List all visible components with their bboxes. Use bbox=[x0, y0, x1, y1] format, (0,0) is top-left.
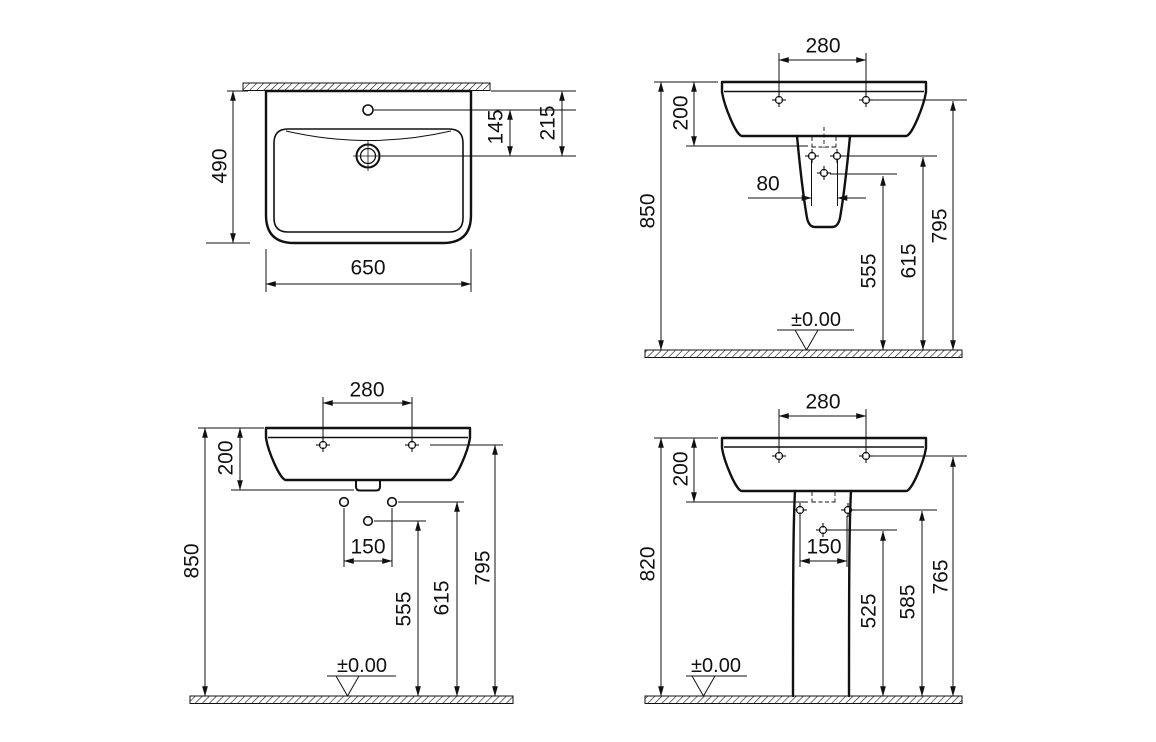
dim-hole-height-label: 765 bbox=[930, 559, 953, 594]
floor-section-band bbox=[645, 696, 962, 704]
dim-pedestal-fixing-height-label: 615 bbox=[898, 243, 921, 278]
dim-basin-height-label: 200 bbox=[670, 95, 693, 130]
dim-bolt-height-label: 585 bbox=[897, 584, 920, 619]
dim-hole-height-label: 795 bbox=[929, 208, 952, 243]
dim-basin-height-label: 200 bbox=[670, 451, 693, 486]
floor-section-band bbox=[645, 350, 962, 358]
floor-datum-label: ±0.00 bbox=[791, 309, 841, 331]
dim-bracket-spacing-label: 150 bbox=[350, 536, 385, 559]
dim-hole-spacing-label: 280 bbox=[805, 391, 840, 414]
floor-section-band bbox=[190, 696, 513, 704]
dim-wall-to-drain-label: 215 bbox=[537, 105, 560, 140]
technical-drawing-sheet: 490 145 215 650 bbox=[0, 0, 1156, 742]
dim-rim-height-label: 820 bbox=[637, 546, 660, 581]
dim-trap-height-label: 525 bbox=[858, 593, 881, 628]
dim-hole-spacing-label: 280 bbox=[805, 35, 840, 58]
canvas-background bbox=[0, 0, 1156, 742]
dim-trap-height-label: 555 bbox=[858, 253, 881, 288]
dim-depth-label: 490 bbox=[209, 148, 232, 183]
dim-hole-spacing-label: 280 bbox=[349, 379, 384, 402]
dim-bolt-spacing-label: 150 bbox=[806, 536, 841, 559]
dim-hole-height-label: 795 bbox=[472, 550, 495, 585]
dim-trap-height-label: 555 bbox=[393, 591, 416, 626]
floor-datum-label: ±0.00 bbox=[337, 655, 387, 677]
washbasin-dimension-drawing: 490 145 215 650 bbox=[0, 0, 1156, 742]
dim-rim-height-label: 850 bbox=[181, 543, 204, 578]
floor-datum-label: ±0.00 bbox=[691, 655, 741, 677]
dim-bracket-height-label: 615 bbox=[431, 580, 454, 615]
wall-section-band bbox=[243, 83, 490, 91]
dim-basin-height-label: 200 bbox=[215, 440, 238, 475]
dim-tap-to-drain-label: 145 bbox=[485, 109, 508, 144]
dim-rim-height-label: 850 bbox=[637, 193, 660, 228]
dim-width-label: 650 bbox=[350, 257, 385, 280]
dim-outlet-spacing-label: 80 bbox=[756, 173, 779, 196]
